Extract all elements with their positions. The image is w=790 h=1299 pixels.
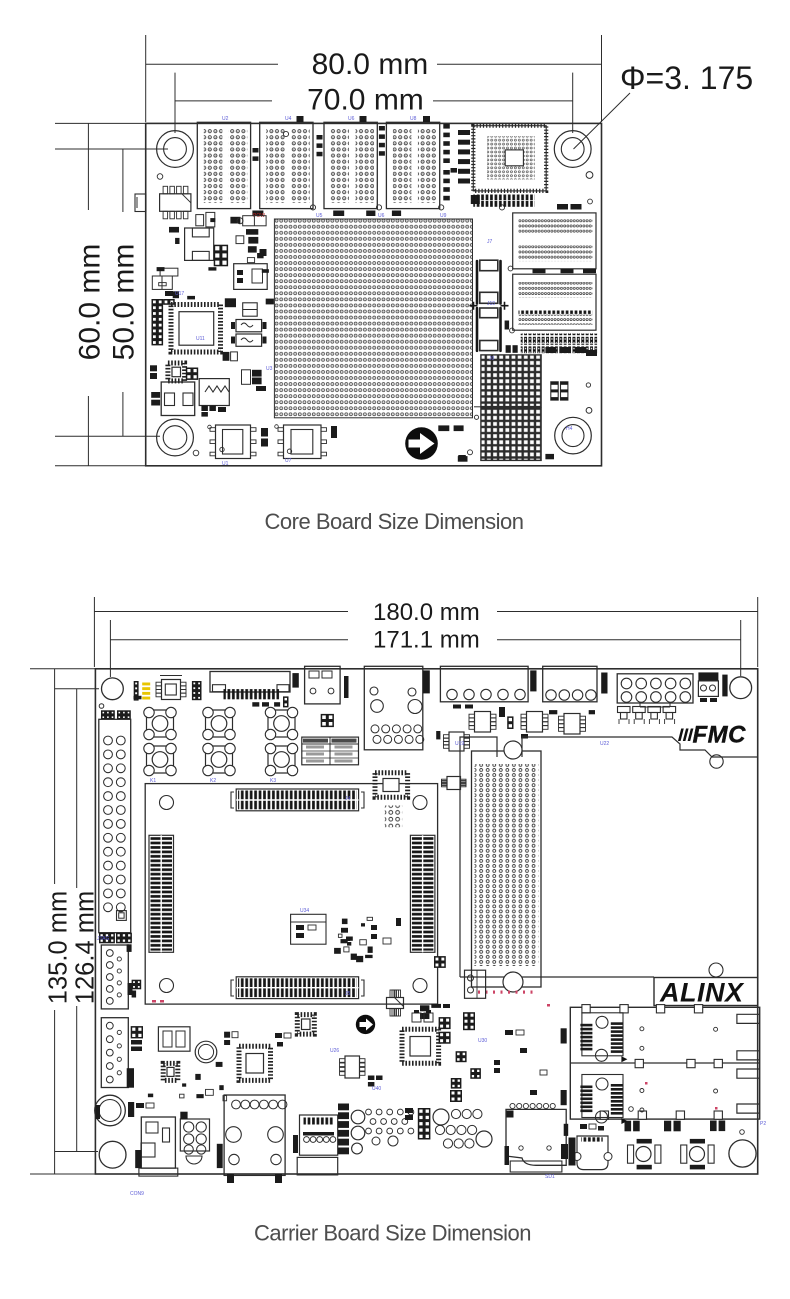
svg-text:P2: P2 (760, 1121, 766, 1127)
svg-text:U3: U3 (266, 366, 273, 372)
svg-text:ALINX: ALINX (659, 978, 745, 1008)
svg-text:U19: U19 (455, 741, 464, 747)
svg-text:J4: J4 (345, 796, 351, 802)
svg-text:80.0 mm: 80.0 mm (312, 48, 429, 81)
svg-text:U7: U7 (285, 458, 292, 464)
svg-text:Core Board Size Dimension: Core Board Size Dimension (265, 509, 524, 534)
svg-text:U5: U5 (316, 213, 323, 219)
svg-text:K3: K3 (270, 778, 276, 784)
svg-text:U8: U8 (410, 116, 417, 122)
svg-text:135.0 mm: 135.0 mm (45, 891, 73, 1004)
svg-text:JTAG: JTAG (97, 936, 110, 942)
svg-text:J7: J7 (487, 239, 493, 245)
svg-text:U6: U6 (378, 213, 385, 219)
svg-text:U22: U22 (600, 741, 609, 747)
svg-text:K1: K1 (150, 778, 156, 784)
svg-text:U17: U17 (175, 291, 184, 297)
svg-text:U40: U40 (372, 1086, 381, 1092)
svg-text:K2: K2 (210, 778, 216, 784)
svg-text:Carrier Board Size Dimension: Carrier Board Size Dimension (254, 1221, 531, 1246)
svg-text:50.0 mm: 50.0 mm (108, 244, 141, 361)
svg-text:126.4 mm: 126.4 mm (72, 891, 100, 1004)
svg-text:U34: U34 (300, 908, 309, 914)
svg-text:70.0 mm: 70.0 mm (307, 84, 424, 117)
svg-text:CON9: CON9 (130, 1191, 144, 1197)
svg-text:Φ=3. 175: Φ=3. 175 (620, 60, 753, 96)
svg-text:U4: U4 (285, 116, 292, 122)
svg-text:180.0 mm: 180.0 mm (373, 599, 480, 626)
svg-text:171.1 mm: 171.1 mm (373, 627, 480, 654)
svg-text:H4: H4 (566, 426, 573, 432)
svg-text:SD1: SD1 (545, 1174, 555, 1180)
svg-text:U2: U2 (222, 116, 229, 122)
svg-text:U6: U6 (348, 116, 355, 122)
svg-text:U11: U11 (196, 336, 205, 342)
svg-text:60.0 mm: 60.0 mm (74, 244, 107, 361)
svg-text:J0: J0 (489, 356, 495, 362)
svg-text:U26: U26 (330, 1048, 339, 1054)
svg-text:U1: U1 (222, 461, 229, 467)
svg-text:J10: J10 (487, 301, 495, 307)
svg-text:U30: U30 (478, 1038, 487, 1044)
svg-text:FMC: FMC (693, 722, 747, 749)
svg-text:U9: U9 (440, 213, 447, 219)
svg-text:J5: J5 (345, 991, 351, 997)
